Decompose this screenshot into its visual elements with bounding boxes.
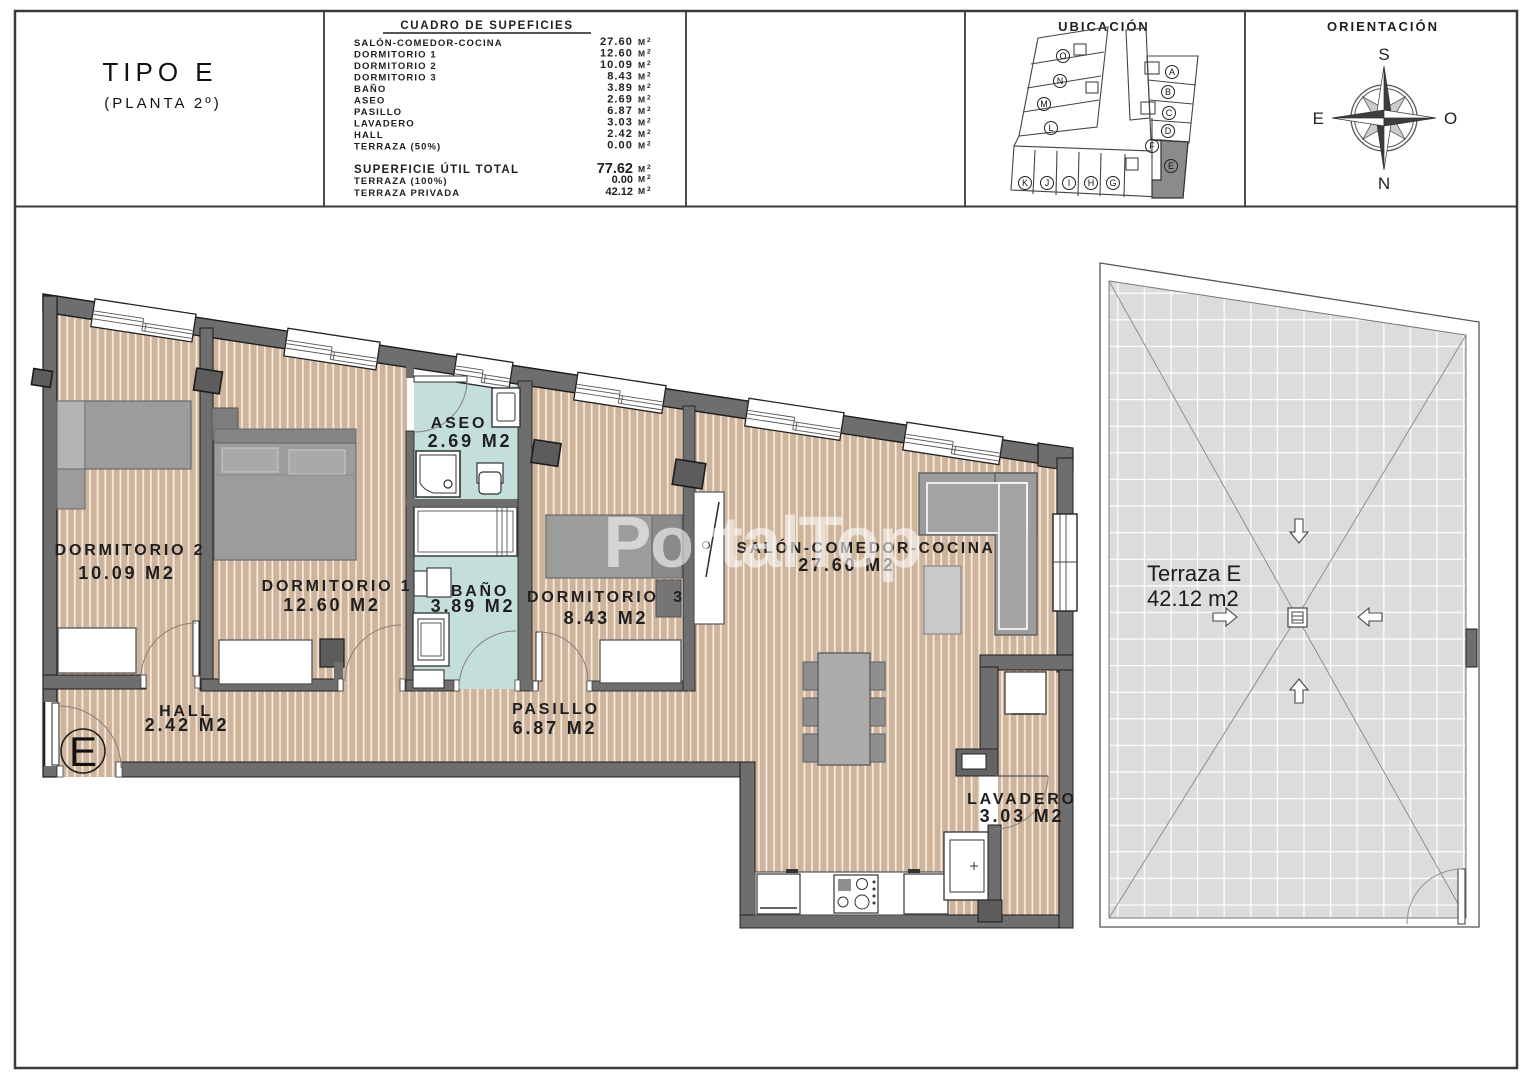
svg-text:N: N xyxy=(1057,76,1064,86)
svg-text:E: E xyxy=(1313,109,1324,128)
svg-text:ORIENTACIÓN: ORIENTACIÓN xyxy=(1327,19,1439,34)
svg-text:42.12 m2: 42.12 m2 xyxy=(1147,586,1239,611)
svg-text:PASILLO: PASILLO xyxy=(512,701,600,718)
svg-text:UBICACIÓN: UBICACIÓN xyxy=(1058,19,1150,34)
svg-text:N: N xyxy=(1378,174,1390,193)
svg-text:DORMITORIO 2: DORMITORIO 2 xyxy=(55,542,206,559)
svg-text:3.89: 3.89 xyxy=(607,82,633,94)
svg-text:10.09 M2: 10.09 M2 xyxy=(78,563,175,583)
svg-text:M: M xyxy=(638,106,646,116)
svg-text:DORMITORIO 2: DORMITORIO 2 xyxy=(354,61,437,72)
svg-text:2: 2 xyxy=(647,129,652,136)
svg-text:TERRAZA PRIVADA: TERRAZA PRIVADA xyxy=(354,188,460,199)
svg-text:3.03: 3.03 xyxy=(607,117,633,129)
svg-text:2: 2 xyxy=(647,83,652,90)
svg-text:M: M xyxy=(638,186,645,196)
svg-text:CUADRO DE SUPEFICIES: CUADRO DE SUPEFICIES xyxy=(400,20,573,32)
svg-text:2: 2 xyxy=(647,164,651,171)
svg-text:H: H xyxy=(1088,178,1095,188)
svg-text:12.60 M2: 12.60 M2 xyxy=(283,595,380,615)
svg-text:2.42: 2.42 xyxy=(607,128,633,140)
svg-text:B: B xyxy=(1165,87,1171,97)
svg-text:2: 2 xyxy=(647,72,652,79)
svg-text:M: M xyxy=(638,129,646,139)
svg-text:Terraza E: Terraza E xyxy=(1147,561,1241,586)
svg-text:DORMITORIO 1: DORMITORIO 1 xyxy=(354,50,437,61)
svg-text:2.69: 2.69 xyxy=(607,94,633,106)
svg-text:2: 2 xyxy=(647,106,652,113)
svg-text:PASILLO: PASILLO xyxy=(354,107,402,118)
svg-text:0.00: 0.00 xyxy=(612,174,633,186)
svg-text:42.12: 42.12 xyxy=(605,186,633,198)
svg-text:2: 2 xyxy=(647,186,651,193)
svg-text:SUPERFICIE ÚTIL TOTAL: SUPERFICIE ÚTIL TOTAL xyxy=(354,163,519,176)
svg-text:E: E xyxy=(69,728,97,775)
svg-text:LAVADERO: LAVADERO xyxy=(354,119,415,130)
svg-text:ASEO: ASEO xyxy=(431,415,488,432)
svg-text:PortalTop: PortalTop xyxy=(603,503,920,583)
svg-text:M: M xyxy=(638,164,645,174)
svg-text:SALÓN-COMEDOR-COCINA: SALÓN-COMEDOR-COCINA xyxy=(354,37,503,49)
svg-text:2: 2 xyxy=(647,141,652,148)
svg-text:A: A xyxy=(1169,67,1175,77)
svg-text:3.89 M2: 3.89 M2 xyxy=(431,596,516,616)
svg-text:2.42 M2: 2.42 M2 xyxy=(145,715,230,735)
svg-text:M: M xyxy=(1040,99,1048,109)
svg-text:6.87: 6.87 xyxy=(607,105,633,117)
svg-text:M: M xyxy=(638,37,646,47)
svg-text:K: K xyxy=(1022,178,1028,188)
svg-text:G: G xyxy=(1109,178,1116,188)
svg-text:D: D xyxy=(1165,126,1172,136)
svg-text:2: 2 xyxy=(647,37,652,44)
svg-text:BAÑO: BAÑO xyxy=(354,84,386,95)
svg-text:27.60: 27.60 xyxy=(600,36,633,48)
svg-text:2: 2 xyxy=(647,174,651,181)
svg-text:C: C xyxy=(1166,108,1173,118)
svg-text:HALL: HALL xyxy=(354,130,384,141)
svg-text:8.43 M2: 8.43 M2 xyxy=(564,608,649,628)
svg-text:M: M xyxy=(638,95,646,105)
svg-text:M: M xyxy=(638,174,645,184)
svg-text:O: O xyxy=(1059,51,1066,61)
svg-text:I: I xyxy=(1068,178,1071,188)
svg-text:S: S xyxy=(1378,45,1389,64)
svg-text:M: M xyxy=(638,60,646,70)
svg-text:TIPO E: TIPO E xyxy=(102,57,217,87)
svg-text:8.43: 8.43 xyxy=(607,71,633,83)
svg-text:DORMITORIO 1: DORMITORIO 1 xyxy=(262,578,413,595)
svg-text:M: M xyxy=(638,118,646,128)
svg-text:O: O xyxy=(1444,109,1457,128)
svg-text:10.09: 10.09 xyxy=(600,59,633,71)
svg-text:M: M xyxy=(638,141,646,151)
svg-text:3.03 M2: 3.03 M2 xyxy=(980,806,1065,826)
svg-text:DORMITORIO 3: DORMITORIO 3 xyxy=(354,73,437,84)
svg-text:12.60: 12.60 xyxy=(600,48,633,60)
svg-text:ASEO: ASEO xyxy=(354,96,385,107)
svg-text:J: J xyxy=(1045,178,1050,188)
svg-text:E: E xyxy=(1168,161,1174,171)
svg-text:0.00: 0.00 xyxy=(607,140,633,152)
svg-text:2: 2 xyxy=(647,60,652,67)
svg-text:M: M xyxy=(638,49,646,59)
svg-text:M: M xyxy=(638,83,646,93)
svg-text:2.69 M2: 2.69 M2 xyxy=(428,431,513,451)
svg-text:L: L xyxy=(1048,123,1053,133)
svg-text:6.87 M2: 6.87 M2 xyxy=(513,718,598,738)
svg-text:TERRAZA (50%): TERRAZA (50%) xyxy=(354,142,441,153)
svg-text:M: M xyxy=(638,72,646,82)
svg-text:2: 2 xyxy=(647,118,652,125)
svg-text:DORMITORIO 3: DORMITORIO 3 xyxy=(527,589,685,606)
svg-text:F: F xyxy=(1149,141,1155,151)
svg-text:TERRAZA (100%): TERRAZA (100%) xyxy=(354,176,448,187)
svg-text:2: 2 xyxy=(647,95,652,102)
svg-text:2: 2 xyxy=(647,49,652,56)
svg-text:(PLANTA 2º): (PLANTA 2º) xyxy=(104,95,221,112)
